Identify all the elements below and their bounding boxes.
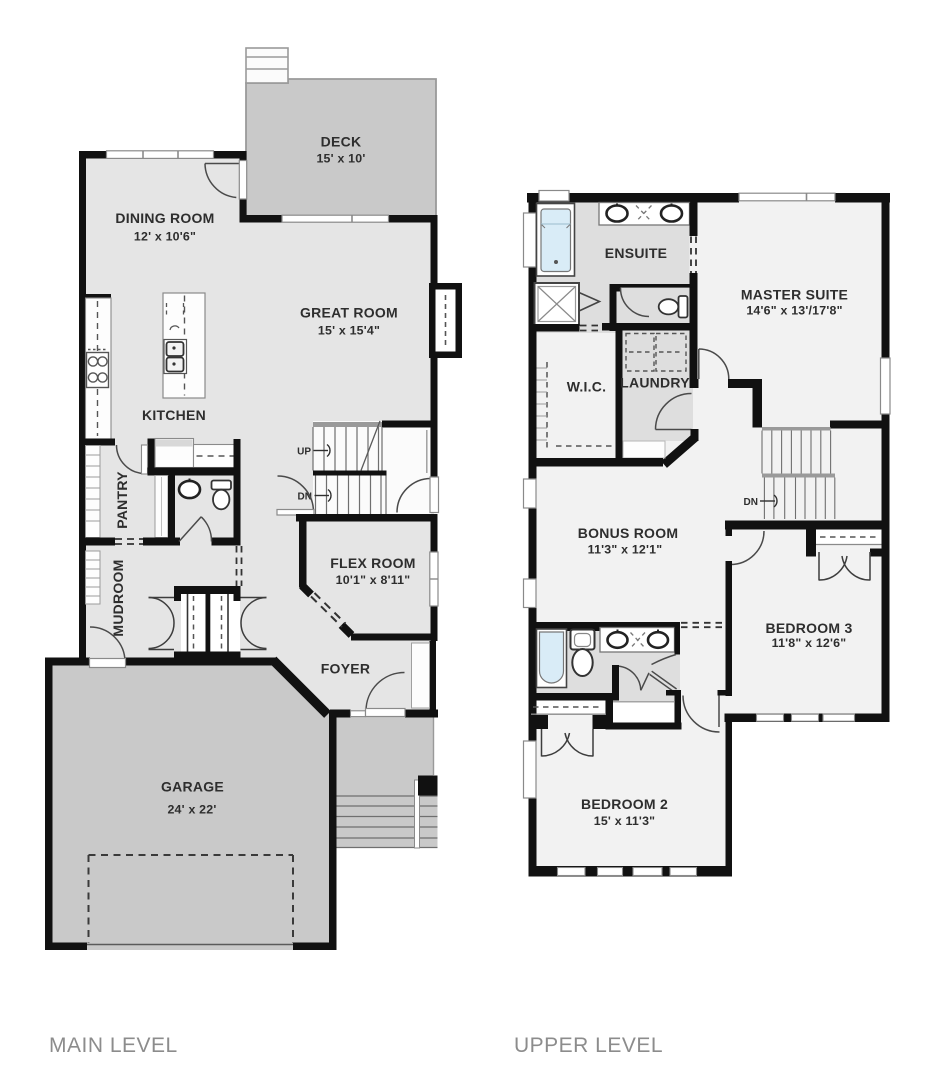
svg-text:DINING ROOM: DINING ROOM [115,210,214,226]
svg-text:ENSUITE: ENSUITE [605,245,667,261]
svg-text:GREAT ROOM: GREAT ROOM [300,305,398,321]
svg-text:15' x 11'3": 15' x 11'3" [594,814,656,828]
svg-text:FLEX ROOM: FLEX ROOM [330,555,415,571]
svg-text:MUDROOM: MUDROOM [110,559,126,636]
svg-text:UPPER LEVEL: UPPER LEVEL [514,1034,663,1057]
svg-text:MASTER SUITE: MASTER SUITE [741,287,848,303]
svg-text:GARAGE: GARAGE [161,779,224,795]
svg-text:14'6" x 13'/17'8": 14'6" x 13'/17'8" [746,304,842,318]
svg-text:BEDROOM 2: BEDROOM 2 [581,796,668,812]
svg-text:10'1" x 8'11": 10'1" x 8'11" [336,573,411,587]
svg-text:15' x 15'4": 15' x 15'4" [318,324,380,338]
svg-text:BEDROOM 3: BEDROOM 3 [765,620,852,636]
svg-text:FOYER: FOYER [321,661,370,677]
svg-text:LAUNDRY: LAUNDRY [620,375,690,391]
svg-text:W.I.C.: W.I.C. [567,379,607,395]
svg-text:PANTRY: PANTRY [114,471,130,529]
svg-text:11'3" x 12'1": 11'3" x 12'1" [588,543,663,557]
svg-text:12' x 10'6": 12' x 10'6" [134,230,196,244]
svg-text:DECK: DECK [321,134,362,150]
svg-text:11'8" x 12'6": 11'8" x 12'6" [772,636,847,650]
svg-text:BONUS ROOM: BONUS ROOM [578,525,679,541]
svg-text:24' x 22': 24' x 22' [167,803,216,817]
svg-text:MAIN LEVEL: MAIN LEVEL [49,1034,178,1057]
svg-text:DN: DN [744,497,758,508]
svg-text:UP: UP [297,447,311,458]
svg-text:15' x 10': 15' x 10' [316,152,365,166]
svg-text:KITCHEN: KITCHEN [142,407,206,423]
